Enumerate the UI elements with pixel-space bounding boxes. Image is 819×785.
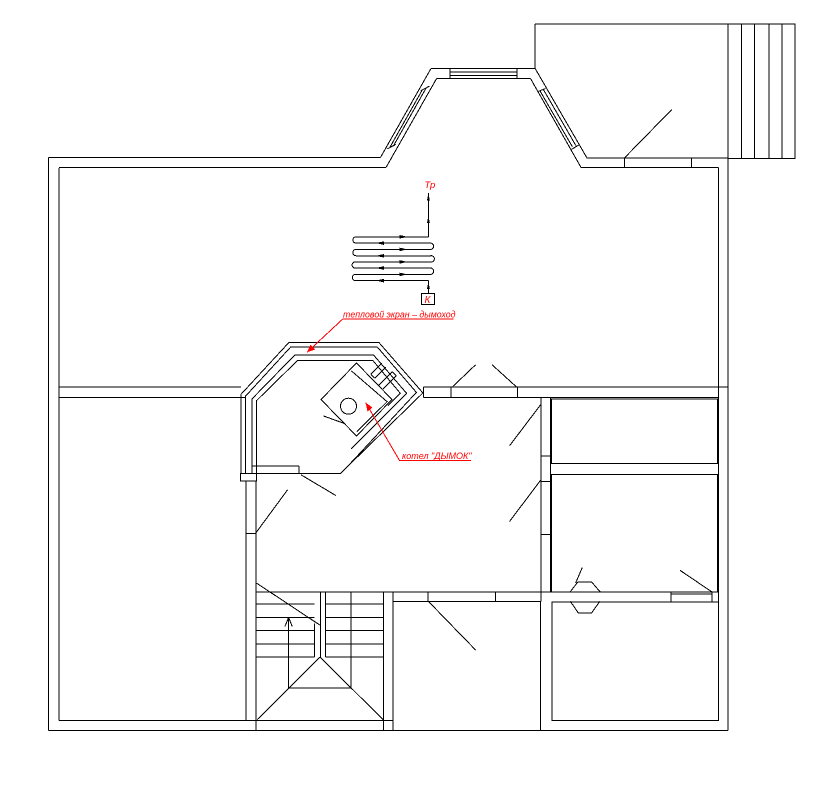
svg-text:Тр: Тр — [425, 180, 436, 191]
svg-text:тепловой экран – дымоход: тепловой экран – дымоход — [343, 310, 456, 320]
svg-text:котел "ДЫМОК": котел "ДЫМОК" — [402, 451, 472, 461]
